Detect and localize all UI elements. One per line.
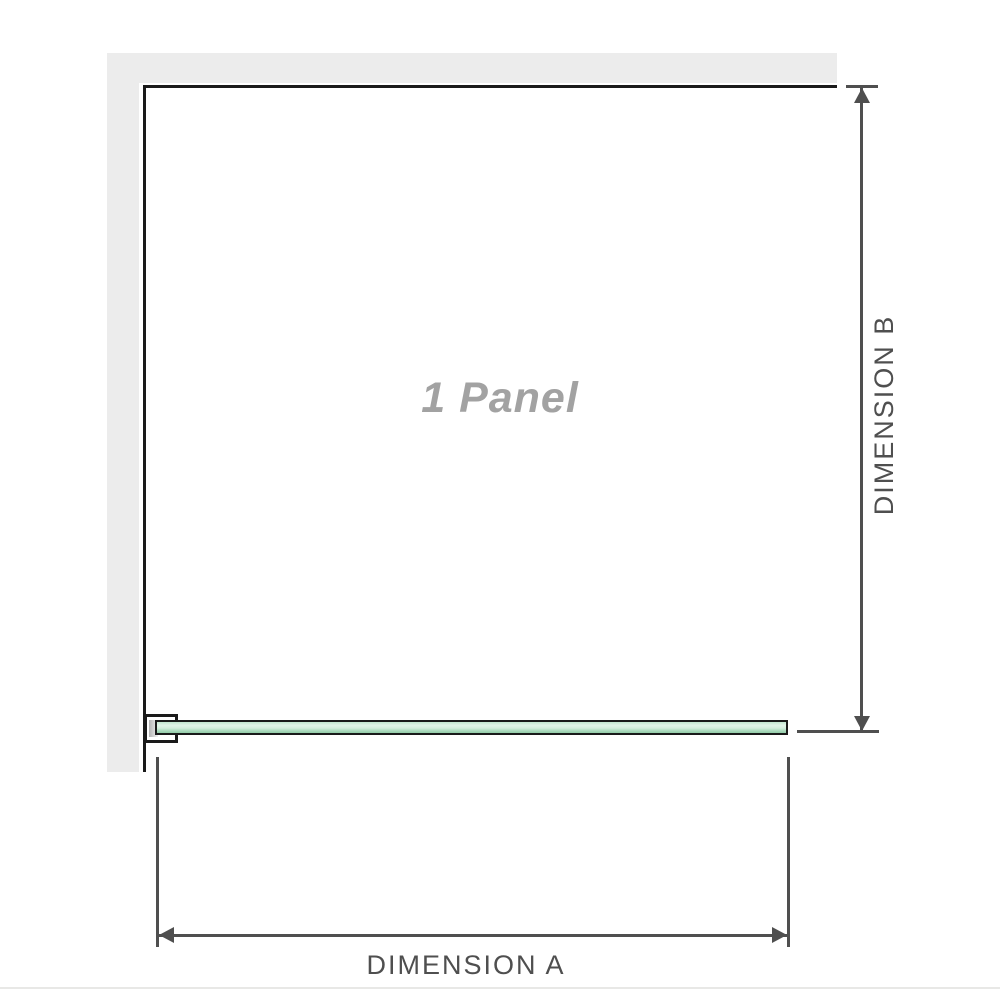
panel-dimension-diagram: 1 Panel DIMENSION B DIMENSION A: [0, 0, 1000, 1000]
glass-panel-bar: [155, 720, 788, 735]
dimension-b-arrowhead-down-icon: [854, 716, 870, 731]
dimension-a-arrowhead-right-icon: [772, 927, 787, 943]
dimension-b-line: [860, 88, 863, 731]
dimension-a-arrowhead-left-icon: [159, 927, 174, 943]
dimension-a-extension-left: [156, 757, 159, 947]
dimension-b-label: DIMENSION B: [869, 285, 899, 545]
dimension-a-line: [159, 934, 787, 937]
dimension-a-extension-right: [787, 757, 790, 947]
page-divider: [0, 987, 1000, 989]
dimension-b-arrowhead-up-icon: [854, 88, 870, 103]
panel-label: 1 Panel: [350, 368, 650, 428]
dimension-a-label: DIMENSION A: [316, 948, 616, 982]
dimension-b-extension-bottom: [797, 730, 879, 733]
wall-top-bar: [107, 53, 837, 83]
wall-left-bar: [107, 53, 139, 772]
